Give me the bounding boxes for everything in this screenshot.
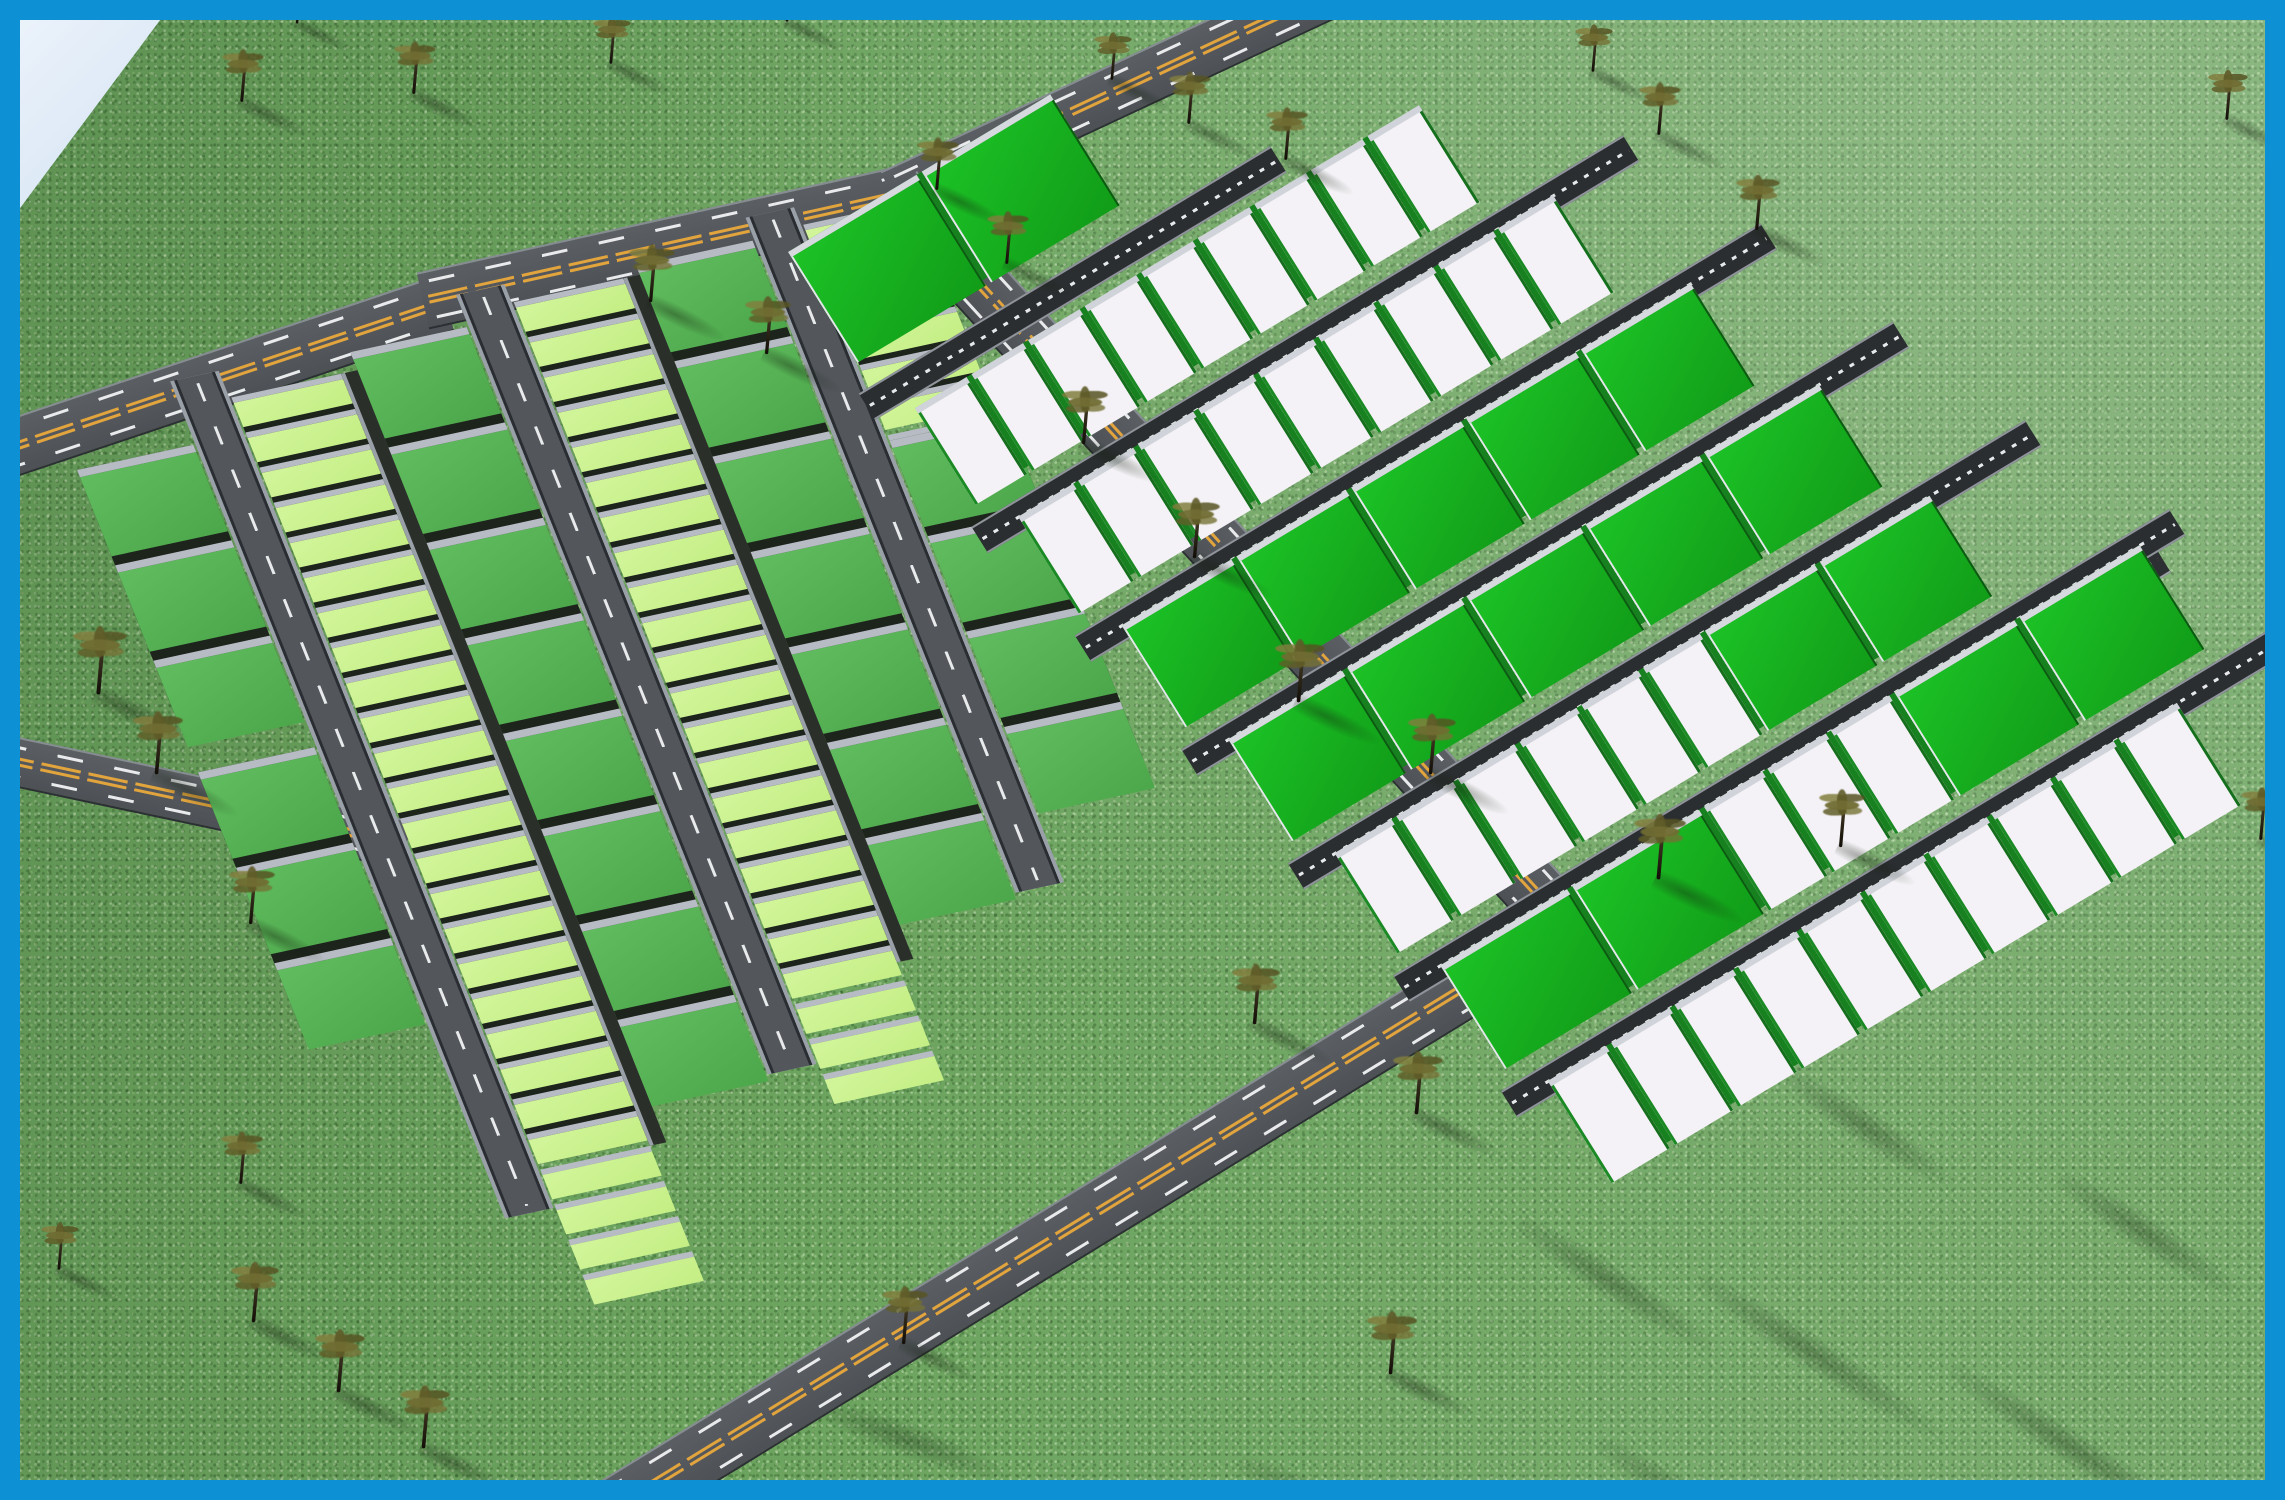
palm-fronds <box>222 858 281 904</box>
tree-shadow-streak <box>1942 1355 2230 1500</box>
tree-shadow-streak <box>814 1391 1014 1493</box>
palm-fronds <box>126 702 191 752</box>
palm-shadow <box>1382 1363 1476 1423</box>
palm-fronds <box>1570 18 1619 56</box>
plot-green-medium <box>115 540 266 652</box>
palm-shadow <box>605 56 675 101</box>
palm-fronds <box>765 0 811 6</box>
palm-shadow <box>2220 111 2285 159</box>
palm-shadow <box>415 1437 509 1497</box>
plot-green-medium <box>77 445 228 557</box>
palm-fronds <box>738 288 797 334</box>
palm-shadow <box>1408 1103 1502 1163</box>
tree-shadow-streak <box>2050 1163 2254 1313</box>
palm-fronds <box>1401 705 1463 753</box>
palm-fronds <box>1626 805 1694 858</box>
palm-fronds <box>36 1216 85 1254</box>
palm-fronds <box>1812 781 1871 827</box>
tree-shadow-streak <box>1232 1447 1447 1500</box>
palm-fronds <box>1260 100 1314 142</box>
palm-shadow <box>781 14 847 57</box>
palm-fronds <box>388 34 442 76</box>
palm-shadow <box>53 1262 123 1307</box>
palm-fronds <box>1165 489 1227 537</box>
palm-fronds <box>2235 780 2285 822</box>
palm-fronds <box>622 236 681 282</box>
palm-fronds <box>1730 167 1787 211</box>
palm-fronds <box>981 204 1035 246</box>
palm-shadow <box>292 16 354 56</box>
palm-shadow <box>1652 126 1730 176</box>
palm-shadow <box>234 1175 312 1225</box>
tree-shadow-streak <box>1590 1428 1828 1500</box>
palm-fronds <box>276 0 319 9</box>
palm-shadow <box>1182 115 1260 165</box>
palm-fronds <box>1089 26 1138 64</box>
palm-fronds <box>1225 955 1287 1003</box>
palm-fronds <box>1360 1302 1425 1352</box>
palm-fronds <box>1268 630 1333 680</box>
palm-fronds <box>224 1253 286 1301</box>
palm-fronds <box>1055 378 1114 424</box>
plot-green-medium <box>1004 702 1155 814</box>
palm-shadow <box>235 93 313 143</box>
palm-fronds <box>911 130 965 172</box>
site-plan-render <box>0 0 2285 1500</box>
palm-fronds <box>65 617 135 672</box>
palm-fronds <box>393 1376 458 1426</box>
tree-shadow-streak <box>1690 1265 1961 1459</box>
palm-fronds <box>2202 63 2253 103</box>
palm-fronds <box>588 10 637 48</box>
palm-fronds <box>1386 1042 1451 1092</box>
palm-fronds <box>215 1124 269 1166</box>
tree-shadow-streak <box>1780 1063 1967 1202</box>
palm-fronds <box>1163 64 1217 106</box>
palm-fronds <box>875 1278 934 1324</box>
palm-fronds <box>216 42 270 84</box>
palm-fronds <box>308 1320 373 1370</box>
palm-fronds <box>1633 75 1687 117</box>
palm-shadow <box>407 85 485 135</box>
